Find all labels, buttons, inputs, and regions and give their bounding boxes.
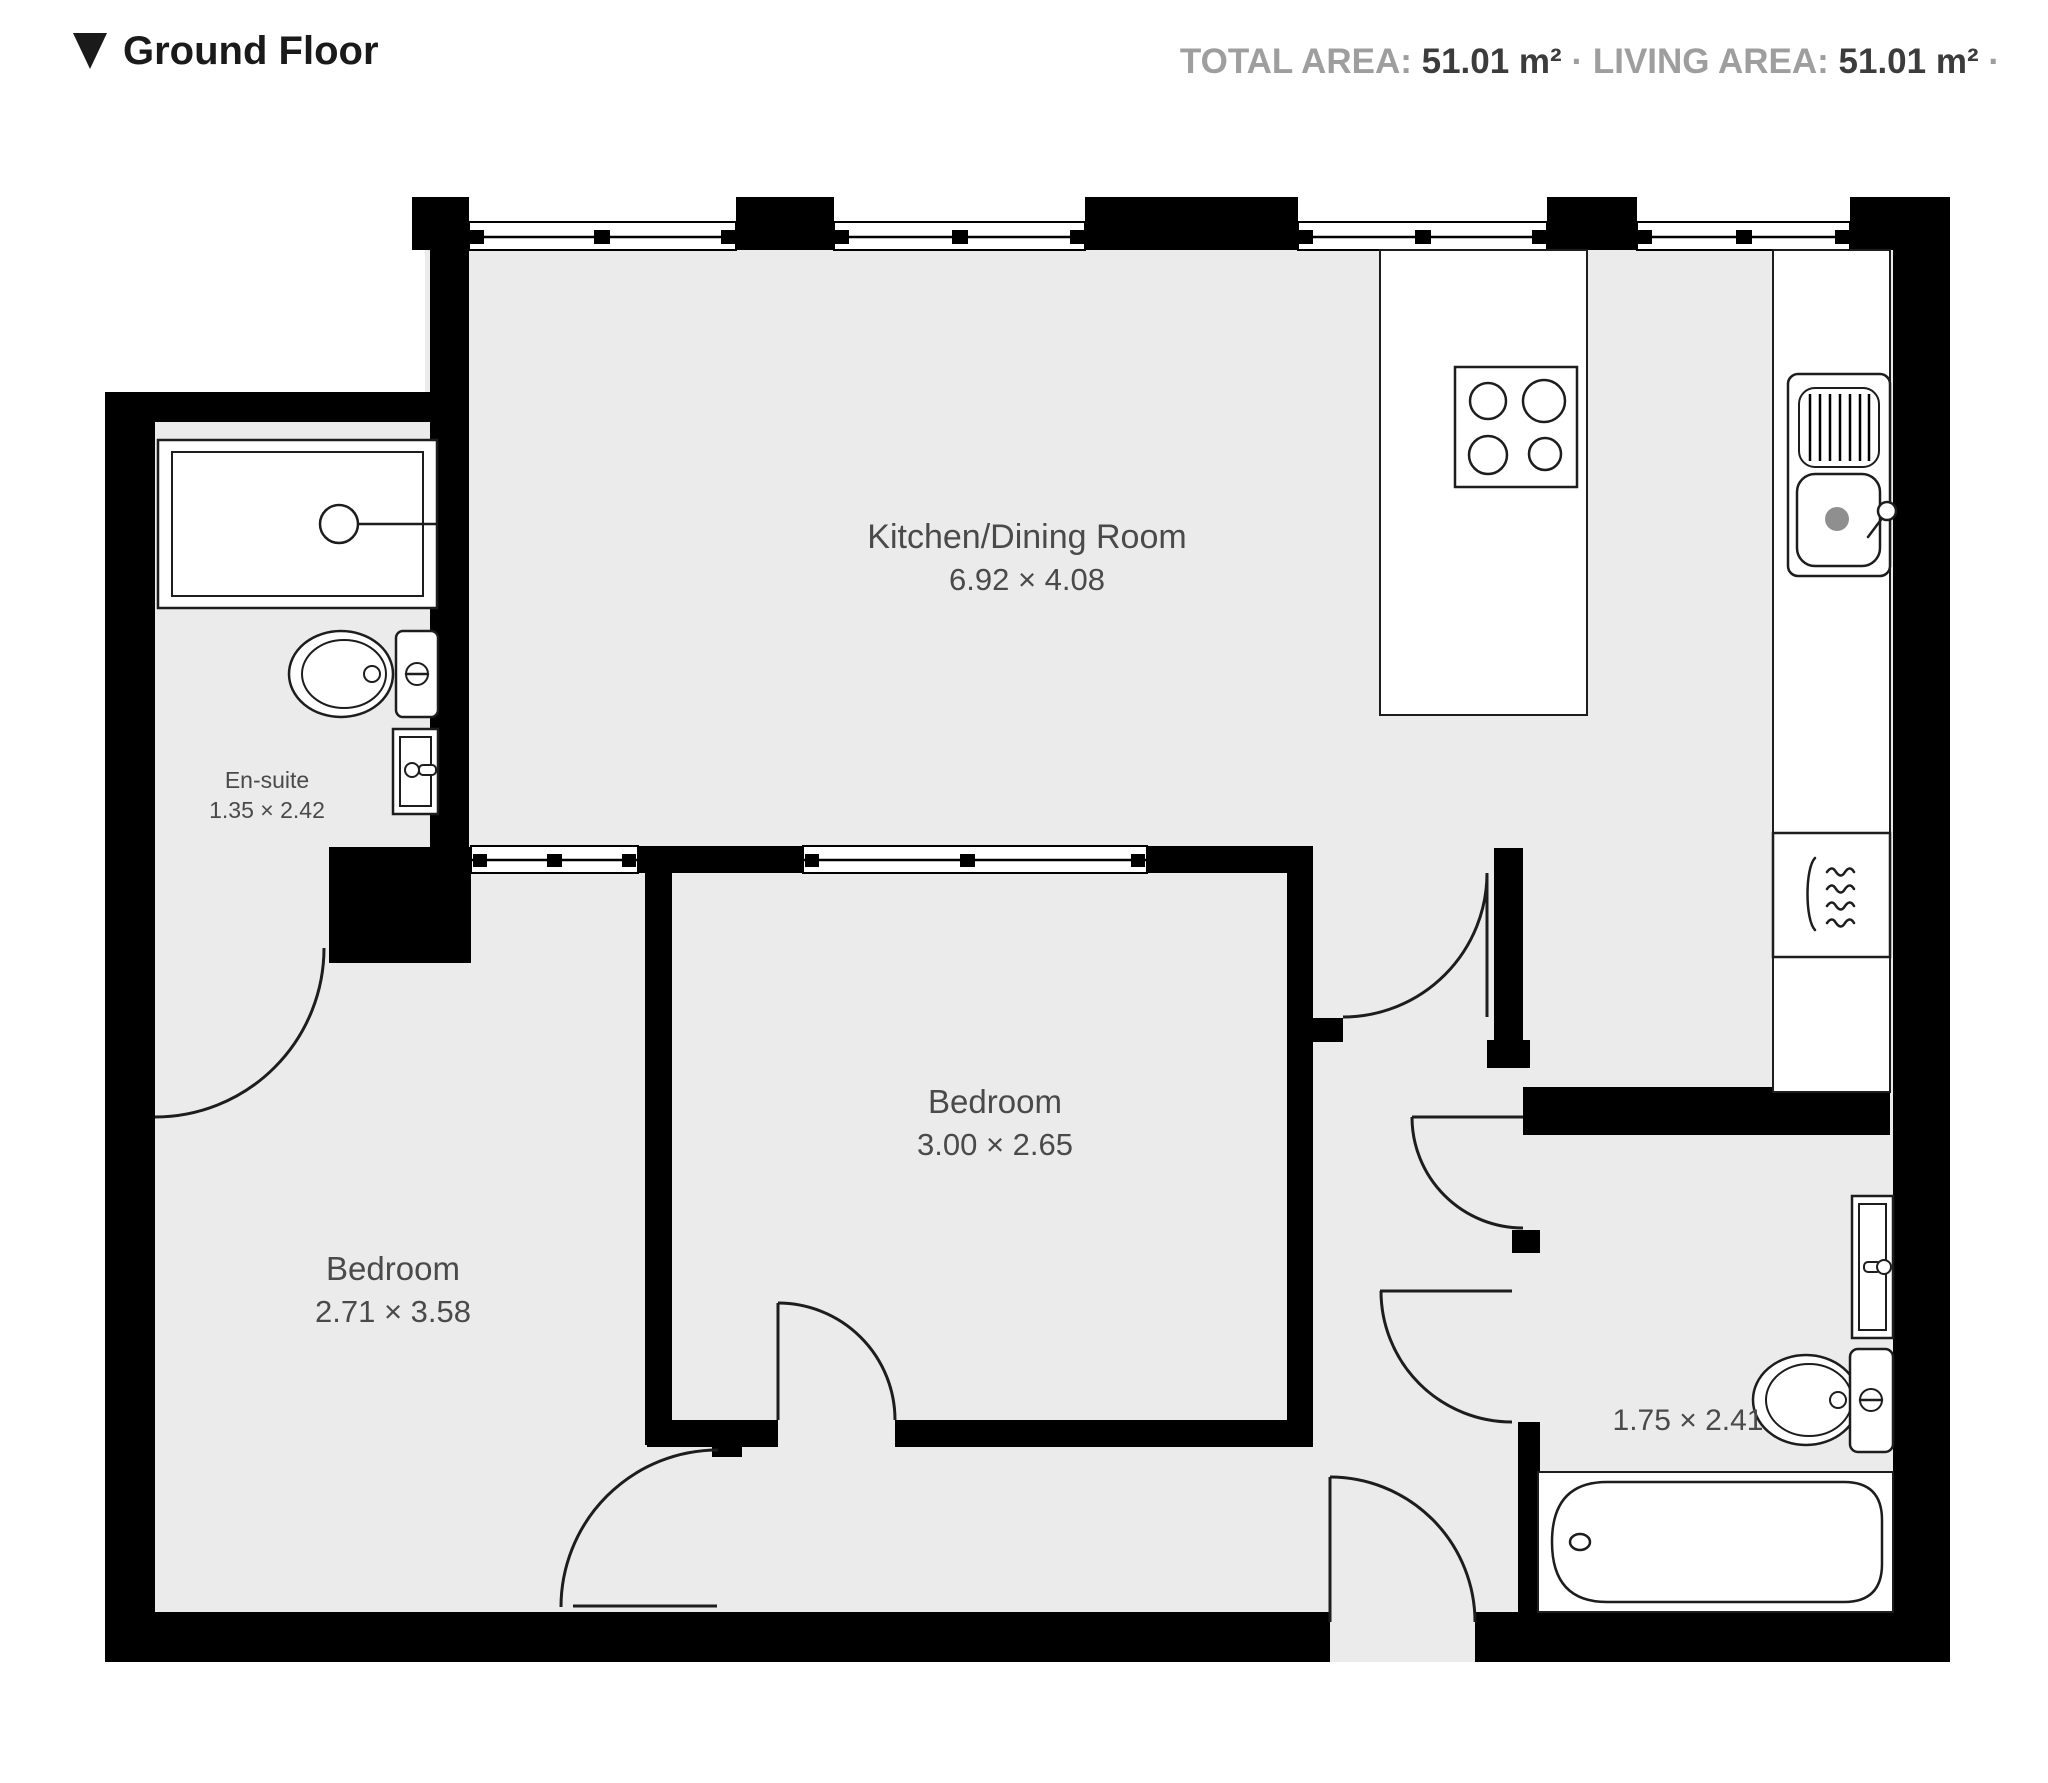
wall-bedroom-mid-right	[1287, 873, 1313, 1447]
oven-icon	[1773, 833, 1890, 957]
wall-pier-bathroom	[1512, 1230, 1540, 1253]
wall-stub-hall-door	[1313, 1018, 1343, 1042]
bathtub-icon	[1538, 1472, 1893, 1612]
wall-divider-b	[1147, 846, 1313, 873]
kitchen-dimensions: 6.92 × 4.08	[949, 562, 1105, 597]
bedroom-middle-dimensions: 3.00 × 2.65	[917, 1127, 1073, 1162]
wall-right	[1893, 197, 1950, 1662]
window-1	[469, 222, 736, 250]
window-3	[1298, 222, 1547, 250]
sink-icon	[393, 729, 438, 814]
wall-left	[105, 392, 155, 1662]
wall-top-pier-3	[1085, 197, 1298, 250]
wall-bedroom-mid-bottom-b	[895, 1420, 1287, 1447]
wall-divider-a	[638, 846, 803, 873]
window-6	[803, 846, 1147, 873]
wall-bathroom-top	[1523, 1087, 1890, 1135]
wall-bedroom-mid-bottom-a	[647, 1420, 778, 1447]
bedroom-middle-label: Bedroom	[928, 1083, 1062, 1120]
ensuite-label: En-suite	[225, 767, 309, 793]
total-area-value: 51.01 m²	[1422, 42, 1562, 81]
total-area-label: TOTAL AREA:	[1180, 42, 1412, 81]
bedroom-left-dimensions: 2.71 × 3.58	[315, 1294, 471, 1329]
wall-top-pier-4	[1547, 197, 1637, 250]
bathroom-dimensions: 1.75 × 2.41	[1613, 1404, 1764, 1437]
kitchen-label: Kitchen/Dining Room	[867, 518, 1186, 556]
wall-stub-bedroom-left-door	[712, 1447, 742, 1457]
wall-bottom-left	[105, 1612, 1330, 1662]
hob-icon	[1455, 367, 1577, 487]
wall-bedroom-mid-left	[645, 873, 672, 1445]
bathroom-sink-icon	[1852, 1196, 1893, 1338]
living-area-label: LIVING AREA:	[1593, 42, 1829, 81]
counter-right	[1773, 250, 1896, 1092]
island-counter	[1380, 250, 1587, 715]
wall-ensuite-top	[105, 392, 469, 422]
drain	[1825, 507, 1849, 531]
wall-bottom-right	[1475, 1612, 1950, 1662]
trailing-dot: ·	[1988, 42, 2000, 81]
wall-top-pier-2	[736, 197, 834, 250]
wall-hall-kitchen	[1494, 848, 1523, 1043]
shower-icon	[158, 440, 437, 608]
bedroom-left-label: Bedroom	[326, 1250, 460, 1287]
area-stats: TOTAL AREA: 51.01 m² · LIVING AREA: 51.0…	[1180, 42, 2000, 81]
separator-dot: ·	[1571, 42, 1583, 81]
living-area-value: 51.01 m²	[1839, 42, 1979, 81]
wall-stub-hall	[1487, 1040, 1530, 1068]
window-4	[1637, 222, 1850, 250]
header: Ground Floor TOTAL AREA: 51.01 m² · LIVI…	[73, 29, 2000, 81]
ensuite-dimensions: 1.35 × 2.42	[209, 797, 325, 823]
floor-plan: Ground Floor TOTAL AREA: 51.01 m² · LIVI…	[0, 0, 2048, 1783]
bathroom-toilet-icon	[1753, 1349, 1893, 1452]
kitchen-sink-icon	[1788, 374, 1896, 576]
page-title: Ground Floor	[123, 29, 379, 73]
toilet-icon	[289, 631, 438, 717]
window-5	[471, 846, 638, 873]
wall-ensuite-corner-block	[329, 847, 471, 963]
window-2	[834, 222, 1085, 250]
collapse-triangle-icon[interactable]	[73, 33, 107, 69]
wall-bathroom-left	[1518, 1422, 1540, 1612]
